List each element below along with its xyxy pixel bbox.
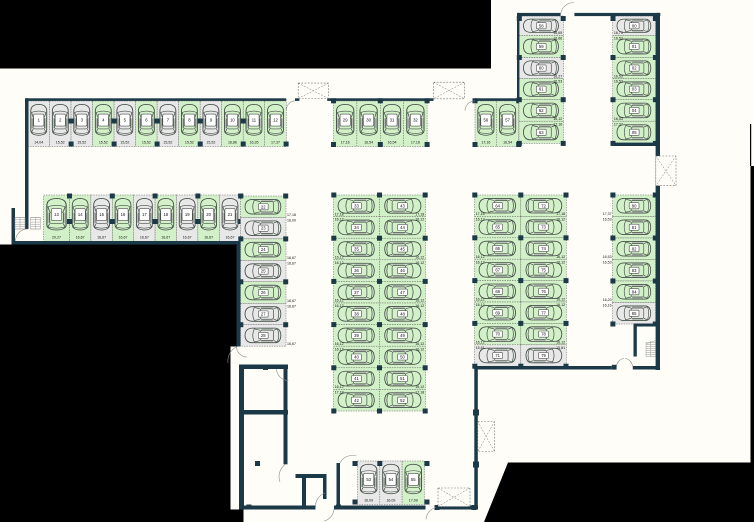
- svg-text:84: 84: [632, 289, 637, 294]
- svg-text:16,35: 16,35: [249, 141, 258, 145]
- svg-text:16,12: 16,12: [556, 298, 565, 302]
- svg-text:13: 13: [54, 212, 59, 217]
- svg-text:16,12: 16,12: [415, 342, 424, 346]
- svg-text:36: 36: [354, 268, 359, 273]
- svg-text:51: 51: [400, 376, 405, 381]
- svg-text:16,12: 16,12: [335, 342, 344, 346]
- svg-text:17,18: 17,18: [415, 391, 424, 395]
- svg-text:15,52: 15,52: [120, 141, 129, 145]
- svg-text:17,37: 17,37: [614, 122, 623, 126]
- svg-text:16,12: 16,12: [476, 255, 485, 259]
- svg-text:83: 83: [632, 268, 637, 273]
- svg-text:68: 68: [495, 289, 500, 294]
- svg-text:17,16: 17,16: [553, 122, 562, 126]
- svg-text:16,53: 16,53: [614, 74, 623, 78]
- svg-text:01: 01: [632, 44, 637, 49]
- svg-text:16,12: 16,12: [556, 218, 565, 222]
- svg-text:15,52: 15,52: [56, 141, 65, 145]
- svg-text:23: 23: [261, 226, 266, 231]
- svg-text:21: 21: [228, 212, 233, 217]
- svg-text:16,67: 16,67: [183, 236, 192, 240]
- svg-text:20,27: 20,27: [52, 236, 61, 240]
- svg-text:79: 79: [541, 353, 546, 358]
- svg-text:30: 30: [366, 118, 371, 123]
- svg-text:02: 02: [632, 66, 637, 71]
- svg-text:16,54: 16,54: [388, 141, 397, 145]
- svg-text:15,52: 15,52: [142, 141, 151, 145]
- svg-text:80: 80: [632, 203, 637, 208]
- svg-text:19: 19: [185, 212, 190, 217]
- svg-text:15,52: 15,52: [185, 141, 194, 145]
- svg-text:00: 00: [632, 23, 637, 28]
- svg-text:61: 61: [539, 87, 544, 92]
- svg-text:16,12: 16,12: [556, 255, 565, 259]
- svg-text:16,67: 16,67: [226, 236, 235, 240]
- svg-text:16,12: 16,12: [415, 299, 424, 303]
- svg-text:25: 25: [261, 269, 266, 274]
- svg-text:49: 49: [400, 333, 405, 338]
- svg-text:50: 50: [400, 355, 405, 360]
- svg-text:75: 75: [541, 267, 546, 272]
- svg-text:17: 17: [142, 212, 147, 217]
- svg-text:16,75: 16,75: [614, 31, 623, 35]
- svg-text:16,09: 16,09: [364, 499, 373, 503]
- svg-text:16,53: 16,53: [614, 117, 623, 121]
- svg-text:15,81: 15,81: [556, 346, 565, 350]
- svg-text:16,67: 16,67: [97, 236, 106, 240]
- svg-text:31: 31: [390, 118, 395, 123]
- svg-text:15: 15: [99, 212, 104, 217]
- svg-text:16,12: 16,12: [415, 347, 424, 351]
- svg-text:16,66: 16,66: [553, 37, 562, 41]
- svg-text:63: 63: [539, 130, 544, 135]
- svg-text:16,53: 16,53: [614, 80, 623, 84]
- svg-text:48: 48: [400, 311, 405, 316]
- svg-text:77: 77: [541, 310, 546, 315]
- svg-text:56: 56: [484, 118, 489, 123]
- svg-text:16,67: 16,67: [204, 236, 213, 240]
- svg-text:20: 20: [206, 212, 211, 217]
- svg-text:16,00: 16,00: [287, 219, 296, 223]
- svg-text:17,18: 17,18: [415, 212, 424, 216]
- svg-text:03: 03: [632, 87, 637, 92]
- svg-text:71: 71: [495, 353, 500, 358]
- svg-text:35: 35: [354, 247, 359, 252]
- svg-text:16,67: 16,67: [287, 342, 296, 346]
- svg-text:16,12: 16,12: [476, 260, 485, 264]
- svg-text:28: 28: [261, 333, 266, 338]
- svg-text:15,52: 15,52: [99, 141, 108, 145]
- svg-text:16,12: 16,12: [335, 299, 344, 303]
- svg-text:16,12: 16,12: [415, 256, 424, 260]
- svg-text:17,16: 17,16: [341, 141, 350, 145]
- svg-text:81: 81: [632, 225, 637, 230]
- svg-text:29: 29: [343, 118, 348, 123]
- svg-text:17,16: 17,16: [476, 212, 485, 216]
- svg-text:32: 32: [413, 118, 418, 123]
- svg-text:17,18: 17,18: [556, 212, 565, 216]
- svg-text:70: 70: [495, 332, 500, 337]
- svg-text:78: 78: [541, 332, 546, 337]
- svg-text:16: 16: [121, 212, 126, 217]
- svg-text:16,20: 16,20: [603, 298, 612, 302]
- svg-text:74: 74: [541, 246, 546, 251]
- svg-text:16,12: 16,12: [335, 261, 344, 265]
- svg-text:34: 34: [354, 225, 359, 230]
- svg-text:16,67: 16,67: [119, 236, 128, 240]
- svg-text:16,53: 16,53: [603, 255, 612, 259]
- svg-text:15,52: 15,52: [77, 141, 86, 145]
- svg-text:24: 24: [261, 247, 266, 252]
- svg-text:15,52: 15,52: [206, 141, 215, 145]
- svg-text:16,67: 16,67: [287, 304, 296, 308]
- svg-text:38: 38: [354, 311, 359, 316]
- svg-text:16,67: 16,67: [76, 236, 85, 240]
- svg-text:33: 33: [354, 203, 359, 208]
- svg-text:57: 57: [505, 118, 510, 123]
- svg-text:16,12: 16,12: [415, 304, 424, 308]
- svg-text:16,12: 16,12: [556, 303, 565, 307]
- svg-text:16,12: 16,12: [335, 385, 344, 389]
- svg-text:16,27: 16,27: [553, 74, 562, 78]
- svg-text:73: 73: [541, 225, 546, 230]
- svg-text:45: 45: [400, 247, 405, 252]
- svg-text:16,67: 16,67: [140, 236, 149, 240]
- svg-text:17,18: 17,18: [335, 391, 344, 395]
- svg-text:16,12: 16,12: [556, 341, 565, 345]
- svg-text:58: 58: [539, 23, 544, 28]
- svg-text:37: 37: [354, 290, 359, 295]
- svg-text:17,37: 17,37: [603, 212, 612, 216]
- svg-text:26: 26: [261, 290, 266, 295]
- svg-text:16,65: 16,65: [553, 31, 562, 35]
- svg-text:52: 52: [400, 398, 405, 403]
- svg-text:67: 67: [495, 267, 500, 272]
- svg-text:15,81: 15,81: [476, 346, 485, 350]
- svg-text:55: 55: [411, 477, 416, 482]
- svg-text:41: 41: [354, 376, 359, 381]
- svg-text:59: 59: [539, 44, 544, 49]
- svg-text:53: 53: [366, 477, 371, 482]
- svg-text:16,67: 16,67: [287, 299, 296, 303]
- svg-text:16,67: 16,67: [287, 256, 296, 260]
- svg-text:64: 64: [495, 203, 500, 208]
- svg-text:62: 62: [539, 108, 544, 113]
- svg-text:16,53: 16,53: [614, 37, 623, 41]
- svg-text:16,12: 16,12: [335, 218, 344, 222]
- svg-text:16,12: 16,12: [553, 117, 562, 121]
- svg-text:60: 60: [539, 66, 544, 71]
- svg-text:10: 10: [230, 118, 235, 123]
- svg-text:17,18: 17,18: [287, 213, 296, 217]
- svg-text:44: 44: [400, 225, 405, 230]
- svg-text:85: 85: [632, 311, 637, 316]
- svg-text:43: 43: [400, 203, 405, 208]
- svg-text:16,12: 16,12: [335, 256, 344, 260]
- svg-text:17,09: 17,09: [409, 499, 418, 503]
- svg-text:14,04: 14,04: [34, 141, 43, 145]
- svg-text:65: 65: [495, 225, 500, 230]
- svg-text:40: 40: [354, 355, 359, 360]
- svg-text:16,53: 16,53: [603, 218, 612, 222]
- svg-text:12: 12: [273, 118, 278, 123]
- svg-text:69: 69: [495, 310, 500, 315]
- svg-text:66: 66: [495, 246, 500, 251]
- svg-text:17,37: 17,37: [271, 141, 280, 145]
- svg-text:16,12: 16,12: [415, 218, 424, 222]
- svg-text:46: 46: [400, 268, 405, 273]
- svg-text:16,67: 16,67: [287, 261, 296, 265]
- svg-text:04: 04: [632, 108, 637, 113]
- svg-text:39: 39: [354, 333, 359, 338]
- svg-text:16,86: 16,86: [228, 141, 237, 145]
- svg-text:76: 76: [541, 289, 546, 294]
- svg-text:17,18: 17,18: [335, 212, 344, 216]
- svg-text:72: 72: [541, 203, 546, 208]
- svg-text:16,16: 16,16: [603, 304, 612, 308]
- svg-text:16,67: 16,67: [161, 236, 170, 240]
- svg-text:16,12: 16,12: [476, 303, 485, 307]
- svg-text:16,12: 16,12: [476, 298, 485, 302]
- svg-text:47: 47: [400, 290, 405, 295]
- svg-text:11: 11: [252, 118, 257, 123]
- svg-text:16,12: 16,12: [476, 341, 485, 345]
- svg-text:16,53: 16,53: [603, 261, 612, 265]
- svg-text:15,52: 15,52: [163, 141, 172, 145]
- svg-text:16,12: 16,12: [556, 260, 565, 264]
- svg-text:16,12: 16,12: [335, 304, 344, 308]
- svg-text:16,12: 16,12: [415, 385, 424, 389]
- svg-text:16,53: 16,53: [553, 80, 562, 84]
- svg-text:16,09: 16,09: [386, 499, 395, 503]
- svg-text:27: 27: [261, 312, 266, 317]
- svg-text:17,16: 17,16: [481, 141, 490, 145]
- svg-text:82: 82: [632, 246, 637, 251]
- svg-text:16,12: 16,12: [335, 347, 344, 351]
- svg-text:42: 42: [354, 398, 359, 403]
- svg-text:16,12: 16,12: [476, 218, 485, 222]
- svg-text:14: 14: [78, 212, 83, 217]
- svg-text:05: 05: [632, 130, 637, 135]
- svg-text:16,54: 16,54: [364, 141, 373, 145]
- svg-text:18: 18: [163, 212, 168, 217]
- svg-text:16,12: 16,12: [415, 261, 424, 265]
- svg-text:16,54: 16,54: [503, 141, 512, 145]
- svg-text:54: 54: [389, 477, 394, 482]
- svg-text:22: 22: [261, 204, 266, 209]
- svg-text:17,16: 17,16: [411, 141, 420, 145]
